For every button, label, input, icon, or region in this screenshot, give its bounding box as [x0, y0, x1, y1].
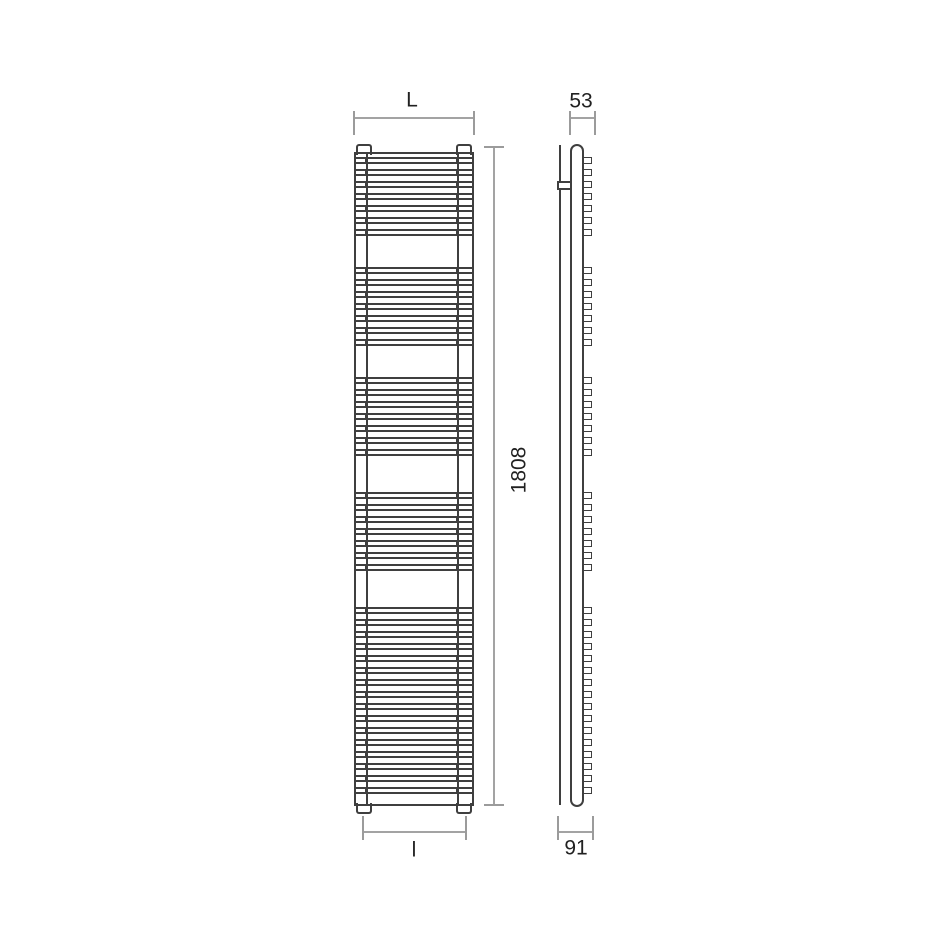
rung-collector-tick	[365, 377, 368, 384]
dim-tick	[362, 816, 364, 840]
side-body-bar	[570, 144, 584, 807]
dim-tick	[594, 111, 596, 135]
rung-collector-tick	[456, 229, 459, 236]
rung-collector-tick	[365, 504, 368, 511]
rung-collector-tick	[456, 339, 459, 346]
rung-collector-tick	[456, 267, 459, 274]
dim-line-width-bottom	[363, 831, 466, 833]
rung-collector-tick	[456, 667, 459, 674]
rung-collector-tick	[456, 437, 459, 444]
rung-collector-tick	[365, 327, 368, 334]
rung-collector-tick	[456, 739, 459, 746]
dim-tick	[473, 111, 475, 135]
rung-collector-tick	[456, 217, 459, 224]
dim-tick	[569, 111, 571, 135]
rung-collector-tick	[456, 528, 459, 535]
rung-collector-tick	[456, 401, 459, 408]
rung-collector-tick	[365, 291, 368, 298]
rung-collector-tick	[365, 229, 368, 236]
rung-collector-tick	[365, 619, 368, 626]
rung-collector-tick	[456, 715, 459, 722]
dim-line-depth-bottom	[558, 831, 593, 833]
dim-tick	[592, 816, 594, 840]
rung-collector-tick	[365, 528, 368, 535]
rung-collector-tick	[456, 763, 459, 770]
rung-collector-tick	[456, 193, 459, 200]
rung-collector-tick	[456, 413, 459, 420]
rung-collector-tick	[365, 739, 368, 746]
rung-collector-tick	[365, 413, 368, 420]
rung-collector-tick	[456, 157, 459, 164]
rung-collector-tick	[456, 631, 459, 638]
rung-collector-tick	[365, 703, 368, 710]
rung-collector-tick	[365, 727, 368, 734]
rung-collector-tick	[365, 169, 368, 176]
rung-collector-tick	[365, 315, 368, 322]
wall-mount-line	[559, 145, 561, 805]
dim-line-depth-top	[570, 117, 595, 119]
rung-collector-tick	[365, 425, 368, 432]
dim-label-width-bottom: l	[412, 840, 417, 861]
rung-collector-tick	[365, 691, 368, 698]
dim-tick	[484, 146, 504, 148]
rung-collector-tick	[365, 679, 368, 686]
rung-collector-tick	[365, 157, 368, 164]
rung-collector-tick	[456, 787, 459, 794]
rung-collector-tick	[456, 205, 459, 212]
rung-collector-tick	[365, 655, 368, 662]
rung-collector-tick	[456, 691, 459, 698]
rung-collector-tick	[456, 552, 459, 559]
rung-collector-tick	[365, 193, 368, 200]
technical-drawing: L 53 1808 l 91	[0, 0, 950, 950]
rung-collector-tick	[456, 540, 459, 547]
rung-collector-tick	[456, 181, 459, 188]
rung-collector-tick	[456, 303, 459, 310]
rung-collector-tick	[456, 279, 459, 286]
rung-collector-tick	[456, 492, 459, 499]
rung-collector-tick	[365, 279, 368, 286]
rung-collector-tick	[365, 449, 368, 456]
rung-collector-tick	[365, 437, 368, 444]
dim-line-width-top	[354, 117, 474, 119]
rung-collector-tick	[456, 327, 459, 334]
rung-collector-tick	[456, 619, 459, 626]
rung-collector-tick	[456, 655, 459, 662]
rung-collector-tick	[365, 205, 368, 212]
rung-collector-tick	[365, 267, 368, 274]
rung-collector-tick	[365, 540, 368, 547]
rung-collector-tick	[365, 401, 368, 408]
rung-collector-tick	[365, 492, 368, 499]
rung-collector-tick	[456, 643, 459, 650]
rung-collector-tick	[456, 751, 459, 758]
rung-collector-tick	[456, 775, 459, 782]
rung-collector-tick	[456, 564, 459, 571]
dim-line-height	[493, 146, 495, 806]
rung-collector-tick	[365, 607, 368, 614]
rung-collector-tick	[456, 315, 459, 322]
dim-label-depth: 53	[569, 91, 592, 112]
rung-collector-tick	[365, 303, 368, 310]
rung-collector-tick	[456, 516, 459, 523]
dim-label-wall-depth: 91	[564, 838, 587, 859]
rung-collector-tick	[365, 643, 368, 650]
rung-collector-tick	[365, 631, 368, 638]
rung-collector-tick	[365, 516, 368, 523]
rung-collector-tick	[365, 667, 368, 674]
rung-collector-tick	[365, 787, 368, 794]
rung-collector-tick	[456, 291, 459, 298]
rung-collector-tick	[365, 715, 368, 722]
rung-collector-tick	[365, 389, 368, 396]
rung-collector-tick	[456, 449, 459, 456]
rung-collector-tick	[365, 181, 368, 188]
rung-collector-tick	[456, 169, 459, 176]
rung-collector-tick	[365, 217, 368, 224]
dim-tick	[557, 816, 559, 840]
rung-collector-tick	[365, 552, 368, 559]
dim-tick	[353, 111, 355, 135]
dim-tick	[484, 804, 504, 806]
rung-collector-tick	[456, 389, 459, 396]
rung-collector-tick	[456, 377, 459, 384]
rung-collector-tick	[456, 727, 459, 734]
rung-collector-tick	[456, 607, 459, 614]
rung-collector-tick	[456, 679, 459, 686]
rung-collector-tick	[365, 763, 368, 770]
rung-collector-tick	[365, 564, 368, 571]
rung-collector-tick	[456, 425, 459, 432]
dim-tick	[465, 816, 467, 840]
dim-label-overall-width: L	[406, 90, 418, 111]
rung-collector-tick	[456, 703, 459, 710]
rung-collector-tick	[365, 751, 368, 758]
dim-label-overall-height: 1808	[509, 447, 530, 494]
rung-collector-tick	[365, 775, 368, 782]
rung-collector-tick	[456, 504, 459, 511]
rung-collector-tick	[365, 339, 368, 346]
